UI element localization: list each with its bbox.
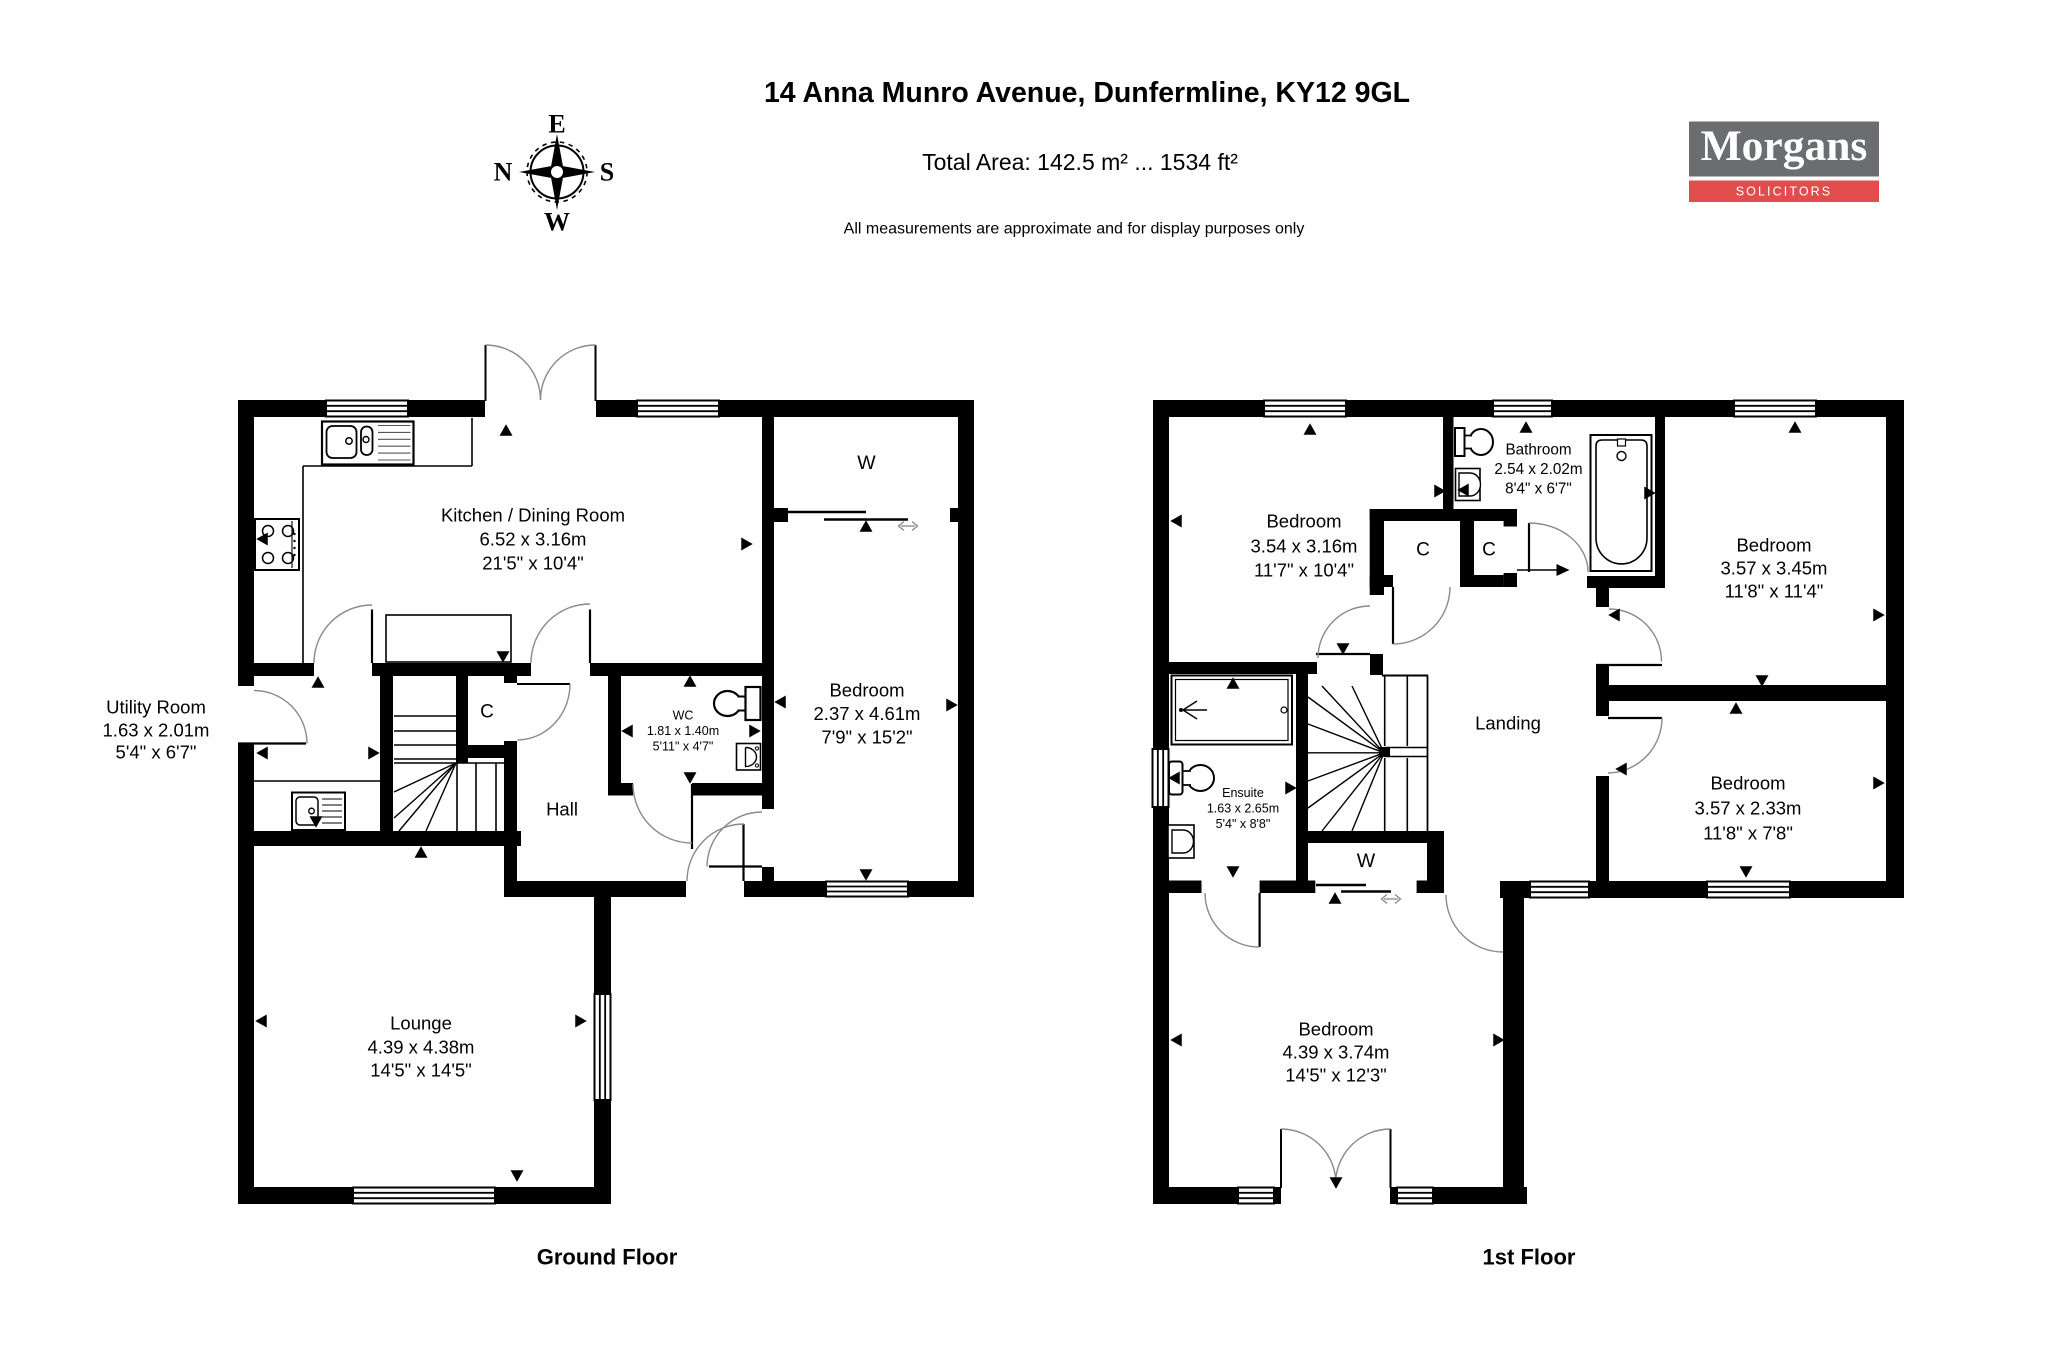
svg-text:14'5" x 14'5": 14'5" x 14'5" bbox=[370, 1060, 471, 1081]
svg-text:C: C bbox=[480, 702, 494, 723]
svg-text:11'8" x 7'8": 11'8" x 7'8" bbox=[1703, 823, 1793, 844]
svg-text:1.81 x 1.40m: 1.81 x 1.40m bbox=[647, 724, 719, 738]
svg-text:7'9" x 15'2": 7'9" x 15'2" bbox=[821, 727, 912, 748]
svg-text:6.52 x 3.16m: 6.52 x 3.16m bbox=[480, 529, 587, 550]
svg-text:Ground Floor: Ground Floor bbox=[537, 1245, 678, 1270]
svg-text:Lounge: Lounge bbox=[390, 1013, 452, 1034]
svg-text:5'11" x 4'7": 5'11" x 4'7" bbox=[653, 740, 714, 754]
svg-text:S: S bbox=[600, 158, 614, 187]
svg-text:4.39 x 4.38m: 4.39 x 4.38m bbox=[368, 1037, 475, 1058]
svg-text:Landing: Landing bbox=[1475, 713, 1541, 734]
svg-text:Bathroom: Bathroom bbox=[1505, 442, 1571, 459]
svg-text:3.57 x 2.33m: 3.57 x 2.33m bbox=[1695, 798, 1802, 819]
svg-text:Morgans: Morgans bbox=[1701, 122, 1868, 170]
svg-text:5'4" x 6'7": 5'4" x 6'7" bbox=[116, 742, 197, 763]
svg-text:2.54 x 2.02m: 2.54 x 2.02m bbox=[1494, 461, 1582, 478]
svg-text:5'4" x 8'8": 5'4" x 8'8" bbox=[1216, 817, 1271, 831]
svg-text:Bedroom: Bedroom bbox=[829, 680, 904, 701]
svg-text:Ensuite: Ensuite bbox=[1222, 786, 1264, 800]
svg-text:W: W bbox=[544, 208, 570, 237]
svg-text:Kitchen / Dining Room: Kitchen / Dining Room bbox=[441, 505, 625, 526]
svg-text:1.63 x 2.01m: 1.63 x 2.01m bbox=[103, 720, 210, 741]
svg-text:11'7" x 10'4": 11'7" x 10'4" bbox=[1254, 560, 1354, 581]
svg-text:Bedroom: Bedroom bbox=[1298, 1019, 1373, 1040]
svg-text:C: C bbox=[1482, 540, 1496, 561]
svg-text:1st Floor: 1st Floor bbox=[1483, 1245, 1576, 1270]
svg-text:Utility Room: Utility Room bbox=[106, 697, 206, 718]
svg-text:W: W bbox=[857, 452, 876, 474]
svg-text:8'4" x 6'7": 8'4" x 6'7" bbox=[1505, 481, 1572, 498]
svg-text:2.37 x 4.61m: 2.37 x 4.61m bbox=[814, 703, 921, 724]
svg-text:21'5" x 10'4": 21'5" x 10'4" bbox=[482, 553, 583, 574]
svg-text:14'5" x 12'3": 14'5" x 12'3" bbox=[1285, 1065, 1386, 1086]
svg-text:4.39 x 3.74m: 4.39 x 3.74m bbox=[1283, 1042, 1390, 1063]
svg-text:All measurements are approxima: All measurements are approximate and for… bbox=[844, 221, 1305, 238]
svg-text:C: C bbox=[1416, 540, 1430, 561]
svg-text:Hall: Hall bbox=[546, 799, 578, 820]
svg-text:Bedroom: Bedroom bbox=[1736, 535, 1811, 556]
svg-text:N: N bbox=[494, 158, 513, 187]
svg-text:3.57 x 3.45m: 3.57 x 3.45m bbox=[1721, 558, 1828, 579]
svg-text:1.63 x 2.65m: 1.63 x 2.65m bbox=[1207, 802, 1279, 816]
svg-text:Bedroom: Bedroom bbox=[1710, 773, 1785, 794]
svg-text:SOLICITORS: SOLICITORS bbox=[1736, 185, 1832, 199]
svg-text:14 Anna Munro Avenue, Dunferml: 14 Anna Munro Avenue, Dunfermline, KY12 … bbox=[764, 77, 1410, 109]
svg-text:11'8" x 11'4": 11'8" x 11'4" bbox=[1725, 581, 1824, 602]
svg-text:Bedroom: Bedroom bbox=[1266, 511, 1341, 532]
svg-text:3.54 x 3.16m: 3.54 x 3.16m bbox=[1251, 536, 1358, 557]
svg-text:Total Area: 142.5 m² ... 1534: Total Area: 142.5 m² ... 1534 ft² bbox=[922, 149, 1238, 175]
svg-text:W: W bbox=[1357, 850, 1376, 872]
svg-text:E: E bbox=[548, 110, 565, 139]
svg-text:WC: WC bbox=[673, 709, 694, 723]
